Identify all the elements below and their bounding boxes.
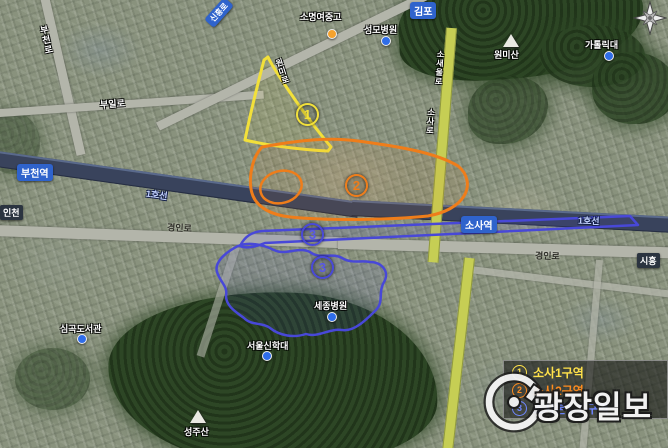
railway-label-line1-west: 1호선 — [145, 187, 168, 203]
poi-marker-dot — [77, 334, 87, 344]
poi-marker-dot — [327, 29, 337, 39]
poi-label-somyeong-school: 소명여중고 — [300, 10, 341, 23]
road-label-gyeongin-ro-west: 경인로 — [167, 220, 192, 234]
poi-label-seoul-theological-univ: 서울신학대 — [247, 339, 288, 352]
poi-marker-dot — [262, 351, 272, 361]
road-label-gyeongin-ro-east: 경인로 — [535, 249, 560, 263]
zone2-marker: 2 — [345, 174, 368, 197]
road-label-sosa-ro: 소사로 — [424, 108, 437, 136]
watermark: 광장일보 — [480, 362, 668, 440]
mountain-icon — [190, 410, 206, 423]
direction-label-incheon: 인천 — [0, 205, 23, 220]
poi-label-catholic-univ: 가톨릭대 — [585, 38, 618, 51]
mountain-icon — [503, 34, 519, 47]
station-label-sosa: 소사역 — [461, 216, 497, 233]
zone1-number: 1 — [304, 107, 311, 122]
zone3-strip-marker: 3 — [301, 223, 324, 246]
compass-icon — [633, 1, 667, 35]
watermark-text: 광장일보 — [534, 382, 652, 427]
direction-label-gimpo: 김포 — [410, 2, 436, 19]
zone3-number: 3 — [319, 260, 326, 275]
zone3-number: 3 — [309, 227, 316, 242]
zone3-blob-outline — [217, 244, 387, 336]
station-label-bucheon: 부천역 — [17, 164, 53, 181]
poi-label-seongmo-hospital: 성모병원 — [364, 23, 397, 36]
mountain-label-seongjusan: 성주산 — [184, 425, 209, 438]
zone2-number: 2 — [353, 178, 360, 193]
satellite-map: 1 2 3 3 부천로 부일로 신흥로 원미로 소새울로 소사로 경인로 경인로… — [0, 0, 668, 448]
poi-label-sejong-hospital: 세종병원 — [314, 299, 347, 312]
zone1-marker: 1 — [296, 103, 319, 126]
poi-marker-dot — [604, 51, 614, 61]
poi-marker-dot — [381, 36, 391, 46]
zone3-blob-marker: 3 — [311, 256, 334, 279]
direction-label-siheung: 시흥 — [637, 253, 660, 268]
railway-label-line1-east: 1호선 — [578, 214, 600, 228]
road-label-buil-ro: 부일로 — [100, 96, 126, 111]
mountain-label-wonmisan: 원미산 — [494, 48, 519, 61]
poi-marker-dot — [327, 312, 337, 322]
